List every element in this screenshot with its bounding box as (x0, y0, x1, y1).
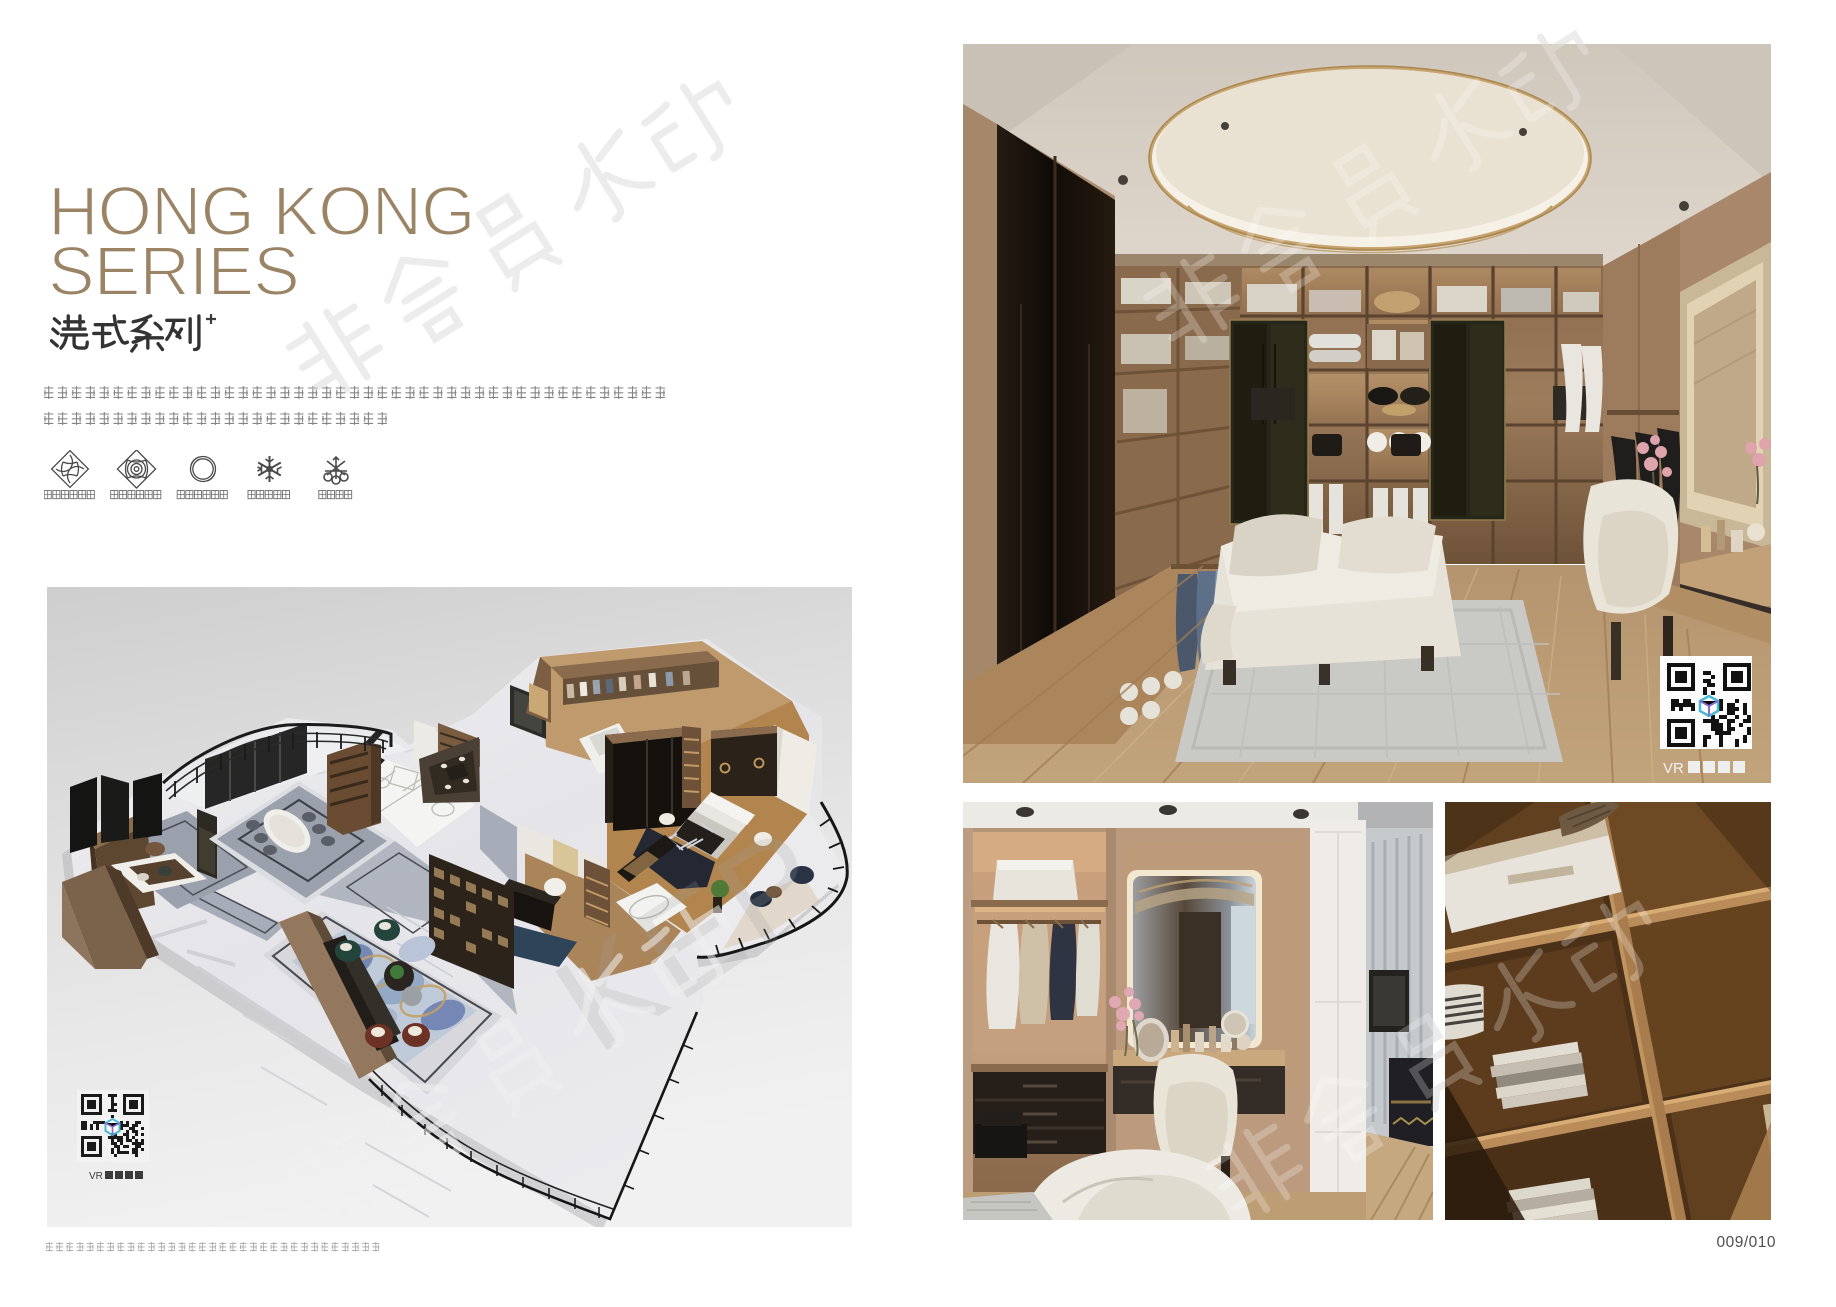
svg-text:VR: VR (1663, 760, 1684, 777)
svg-text:VR: VR (89, 1171, 103, 1182)
